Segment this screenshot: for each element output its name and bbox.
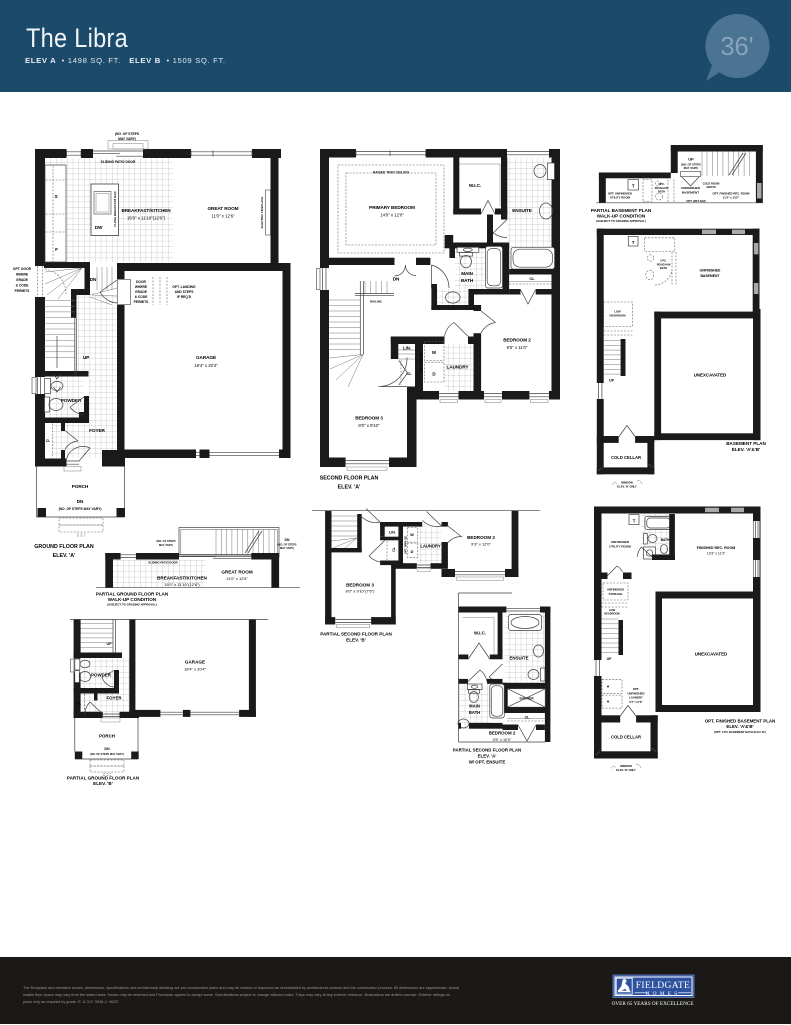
svg-text:ENSUITE: ENSUITE [512, 208, 532, 213]
svg-text:T: T [632, 184, 635, 189]
svg-text:MAIN: MAIN [469, 704, 480, 709]
svg-text:PRIMARY BEDROOM: PRIMARY BEDROOM [369, 205, 415, 210]
svg-text:DN: DN [77, 499, 84, 504]
svg-text:9'5" x 10'0": 9'5" x 10'0" [493, 738, 512, 742]
svg-text:GRADE: GRADE [135, 290, 148, 294]
svg-text:FLUSH BREAKFAST BAR: FLUSH BREAKFAST BAR [113, 191, 117, 227]
svg-text:ENSUITE: ENSUITE [509, 656, 528, 661]
svg-text:ABOVE: ABOVE [706, 185, 716, 189]
svg-text:BEDROOM 2: BEDROOM 2 [489, 731, 516, 736]
svg-text:BASEMENT PLAN: BASEMENT PLAN [726, 441, 766, 446]
svg-text:W.I.C.: W.I.C. [474, 631, 486, 636]
svg-text:FINISHED REC. ROOM: FINISHED REC. ROOM [697, 546, 736, 550]
svg-text:DN: DN [104, 747, 110, 751]
svg-text:CL: CL [406, 371, 412, 376]
svg-text:BEDROOM 2: BEDROOM 2 [503, 338, 531, 343]
svg-text:9'3" x 12'0": 9'3" x 12'0" [471, 542, 491, 547]
svg-text:UP: UP [688, 157, 694, 162]
svg-text:PARTIAL BASEMENT PLAN: PARTIAL BASEMENT PLAN [591, 208, 652, 213]
svg-text:(SUBJECT TO GRADING APPROVAL): (SUBJECT TO GRADING APPROVAL) [107, 603, 157, 607]
svg-text:GREAT ROOM: GREAT ROOM [208, 206, 239, 211]
svg-text:UP: UP [609, 379, 615, 383]
svg-text:FIELDGATE: FIELDGATE [636, 980, 690, 991]
svg-text:FOYER: FOYER [89, 428, 105, 433]
svg-text:SHOWER: SHOWER [519, 697, 534, 701]
svg-text:ROUGH-IN: ROUGH-IN [655, 186, 669, 190]
svg-text:DOOR: DOOR [136, 280, 147, 284]
svg-text:LAUNDRY: LAUNDRY [420, 544, 441, 549]
svg-text:S: S [54, 194, 57, 199]
svg-text:8'0" x 9'10": 8'0" x 9'10" [358, 423, 380, 428]
svg-text:MAY VARY): MAY VARY) [280, 546, 294, 550]
svg-text:13'3" x 11'3": 13'3" x 11'3" [707, 552, 726, 556]
svg-text:W.I.C.: W.I.C. [469, 183, 481, 188]
svg-text:WINDOW: WINDOW [620, 764, 632, 768]
svg-text:WHERE: WHERE [135, 285, 148, 289]
svg-text:LAUNDRY: LAUNDRY [446, 365, 469, 370]
svg-text:BASEMENT: BASEMENT [700, 274, 720, 278]
svg-text:SECOND FLOOR PLAN: SECOND FLOOR PLAN [320, 476, 379, 482]
svg-text:OVER 65 YEARS OF EXCELLENCE: OVER 65 YEARS OF EXCELLENCE [612, 1001, 695, 1007]
svg-text:OPT. APPL'SE: OPT. APPL'SE [403, 536, 407, 554]
svg-text:T: T [632, 240, 635, 245]
svg-text:HOMES: HOMES [646, 991, 681, 997]
svg-text:COLD ROOM: COLD ROOM [703, 182, 720, 186]
svg-text:PARTIAL GROUND FLOOR PLAN: PARTIAL GROUND FLOOR PLAN [96, 592, 169, 597]
svg-text:SLIDING PATIO DOOR: SLIDING PATIO DOOR [148, 561, 177, 565]
svg-text:(NO. OF STEPS: (NO. OF STEPS [115, 132, 140, 136]
svg-text:OPT. LANDING: OPT. LANDING [172, 285, 196, 289]
svg-text:CL: CL [525, 715, 531, 719]
svg-text:GRADE: GRADE [16, 278, 29, 282]
svg-text:WALK-UP CONDITION: WALK-UP CONDITION [597, 214, 646, 219]
svg-text:UNEXCAVATED: UNEXCAVATED [695, 652, 727, 657]
svg-text:COLD CELLAR: COLD CELLAR [611, 455, 641, 460]
svg-text:3 PC.: 3 PC. [658, 182, 665, 186]
svg-text:GARAGE: GARAGE [185, 660, 205, 665]
svg-text:BEDROOM 3: BEDROOM 3 [355, 416, 383, 421]
svg-text:18'4" x 20'4": 18'4" x 20'4" [194, 363, 218, 368]
svg-text:9'5" x 11'0": 9'5" x 11'0" [507, 345, 528, 350]
svg-text:ELEV. 'A': ELEV. 'A' [478, 754, 497, 759]
svg-text:MAIN: MAIN [461, 271, 473, 276]
svg-text:(NO. OF STEPS: (NO. OF STEPS [156, 539, 175, 543]
svg-text:DN: DN [285, 538, 290, 542]
svg-text:11'0" x 12'6": 11'0" x 12'6" [226, 576, 248, 581]
svg-text:SLIDING PATIO DOOR: SLIDING PATIO DOOR [101, 160, 136, 164]
svg-text:DN: DN [90, 277, 97, 282]
svg-text:PORCH: PORCH [72, 484, 89, 489]
svg-text:DN: DN [393, 277, 400, 282]
svg-text:(NO. OF STEPS MAY VARY): (NO. OF STEPS MAY VARY) [59, 507, 102, 511]
svg-text:ROUGH-IN: ROUGH-IN [657, 262, 671, 266]
svg-text:UTILITY ROOM: UTILITY ROOM [609, 545, 631, 549]
svg-text:RAISED TRAY CEILING: RAISED TRAY CEILING [373, 171, 410, 175]
svg-text:ELEV. 'A': ELEV. 'A' [53, 553, 76, 559]
svg-text:& CODE: & CODE [16, 284, 30, 288]
svg-text:(NO. OF STEPS: (NO. OF STEPS [681, 163, 701, 167]
svg-text:UNEXCAVATED: UNEXCAVATED [694, 373, 726, 378]
svg-text:UTILITY ROOM: UTILITY ROOM [610, 195, 631, 199]
svg-text:ELEV. 'B' ONLY: ELEV. 'B' ONLY [616, 768, 636, 772]
svg-text:BATH: BATH [661, 538, 670, 542]
svg-text:PERMITS: PERMITS [134, 300, 149, 304]
svg-text:15'0" x 11'10"(12'6"): 15'0" x 11'10"(12'6") [164, 582, 200, 587]
svg-text:BATH: BATH [469, 710, 480, 715]
svg-text:LOW: LOW [609, 608, 616, 612]
svg-text:ELEV. 'B': ELEV. 'B' [93, 781, 113, 786]
svg-text:IF REQ'D: IF REQ'D [177, 295, 192, 299]
svg-text:FOYER: FOYER [106, 696, 122, 701]
svg-text:MAY VARY): MAY VARY) [159, 543, 173, 547]
svg-text:GREAT ROOM: GREAT ROOM [221, 570, 252, 575]
svg-text:AND STEPS: AND STEPS [175, 290, 195, 294]
svg-text:PARTIAL SECOND FLOOR PLAN: PARTIAL SECOND FLOOR PLAN [320, 632, 392, 637]
svg-text:ELEV. 'A': ELEV. 'A' [338, 485, 361, 491]
svg-text:11'0" x 12'6": 11'0" x 12'6" [211, 214, 235, 219]
svg-text:WINDOW: WINDOW [621, 481, 633, 485]
svg-text:HEADROOM: HEADROOM [604, 612, 619, 616]
svg-text:PERMITS: PERMITS [15, 289, 30, 293]
svg-text:(NO. OF STEPS MAY VARY): (NO. OF STEPS MAY VARY) [90, 752, 124, 756]
svg-text:D: D [411, 550, 414, 554]
svg-text:W: W [410, 533, 414, 537]
svg-text:UP: UP [83, 355, 89, 360]
svg-text:PORCH: PORCH [99, 734, 115, 739]
svg-text:BEDROOM 3: BEDROOM 3 [346, 583, 374, 588]
svg-text:ELECTRIC FIREPLACE: ELECTRIC FIREPLACE [260, 197, 264, 229]
svg-text:HEADROOM: HEADROOM [610, 313, 627, 317]
svg-text:ELEV. 'B' ONLY: ELEV. 'B' ONLY [617, 484, 637, 488]
svg-text:BATH: BATH [658, 190, 665, 194]
svg-text:3 PC.: 3 PC. [660, 259, 667, 263]
svg-text:(NO. OF STEPS: (NO. OF STEPS [277, 543, 296, 547]
svg-text:CL: CL [392, 547, 396, 552]
svg-text:LIN.: LIN. [403, 346, 411, 351]
svg-text:18'4" x 20'4": 18'4" x 20'4" [184, 667, 207, 672]
svg-text:LIN.: LIN. [389, 531, 396, 535]
svg-text:(OPT. 3 PC BASEMENT BATH ELEV: (OPT. 3 PC BASEMENT BATH ELEV 'B') [714, 730, 766, 734]
svg-text:OPT. APPL'SE: OPT. APPL'SE [419, 352, 423, 371]
svg-text:RAILING: RAILING [370, 300, 383, 304]
svg-text:WHERE: WHERE [16, 273, 29, 277]
svg-text:T: T [633, 518, 636, 523]
svg-text:STORAGE: STORAGE [609, 592, 623, 596]
svg-text:GARAGE: GARAGE [196, 355, 216, 360]
svg-text:CL: CL [529, 276, 535, 281]
svg-text:UNFINISHED: UNFINISHED [700, 269, 721, 273]
svg-text:ELEV. 'A'&'B': ELEV. 'A'&'B' [726, 724, 753, 729]
svg-text:OPT. WET BAR: OPT. WET BAR [686, 199, 705, 203]
svg-text:W: W [432, 350, 437, 355]
svg-text:MAY VARY): MAY VARY) [684, 166, 699, 170]
svg-text:UP: UP [607, 657, 612, 661]
svg-text:UNFINISHED: UNFINISHED [681, 186, 701, 190]
svg-text:CL: CL [46, 439, 50, 443]
svg-text:15'0" x 11'10"(12'6"): 15'0" x 11'10"(12'6") [127, 216, 166, 221]
svg-text:W/ OPT. ENSUITE: W/ OPT. ENSUITE [469, 760, 506, 765]
svg-text:OPT. DOOR: OPT. DOOR [13, 267, 32, 271]
svg-text:BREAKFAST/KITCHEN: BREAKFAST/KITCHEN [157, 576, 207, 581]
svg-text:BASEMENT: BASEMENT [682, 191, 699, 195]
svg-text:OPT. FINISHED BASEMENT PLAN: OPT. FINISHED BASEMENT PLAN [705, 719, 776, 724]
svg-text:& CODE: & CODE [135, 295, 149, 299]
svg-text:(SUBJECT TO GRADING APPROVAL): (SUBJECT TO GRADING APPROVAL) [596, 219, 646, 223]
svg-text:D: D [432, 372, 435, 377]
svg-text:CL: CL [76, 702, 82, 706]
svg-text:BATH: BATH [660, 266, 667, 270]
svg-text:14'0" x 12'0": 14'0" x 12'0" [380, 213, 404, 218]
svg-text:DW: DW [95, 225, 103, 230]
svg-text:PARTIAL SECOND FLOOR PLAN: PARTIAL SECOND FLOOR PLAN [453, 748, 521, 753]
svg-text:GROUND FLOOR PLAN: GROUND FLOOR PLAN [34, 544, 94, 550]
svg-text:UP: UP [107, 642, 113, 646]
svg-text:ELEV. 'A'&'B': ELEV. 'A'&'B' [732, 447, 760, 452]
svg-text:BREAKFAST/KITCHEN: BREAKFAST/KITCHEN [121, 208, 171, 213]
svg-text:F: F [55, 247, 58, 252]
svg-text:PARTIAL GROUND FLOOR PLAN: PARTIAL GROUND FLOOR PLAN [67, 776, 140, 781]
svg-text:COLD CELLAR: COLD CELLAR [611, 735, 641, 740]
svg-text:11'2" x 13'5": 11'2" x 13'5" [723, 195, 740, 199]
svg-text:WALK-UP CONDITION: WALK-UP CONDITION [108, 597, 157, 602]
svg-text:BATH: BATH [461, 278, 474, 283]
svg-text:UNFINISHED: UNFINISHED [611, 540, 630, 544]
svg-text:8'0" x 9'10"(7'6"): 8'0" x 9'10"(7'6") [345, 589, 375, 594]
svg-text:LOW: LOW [614, 310, 621, 314]
svg-text:ELEV. 'B': ELEV. 'B' [346, 638, 366, 643]
svg-text:6'7" x 5'6": 6'7" x 5'6" [629, 700, 643, 704]
svg-text:BEDROOM 2: BEDROOM 2 [467, 535, 495, 540]
